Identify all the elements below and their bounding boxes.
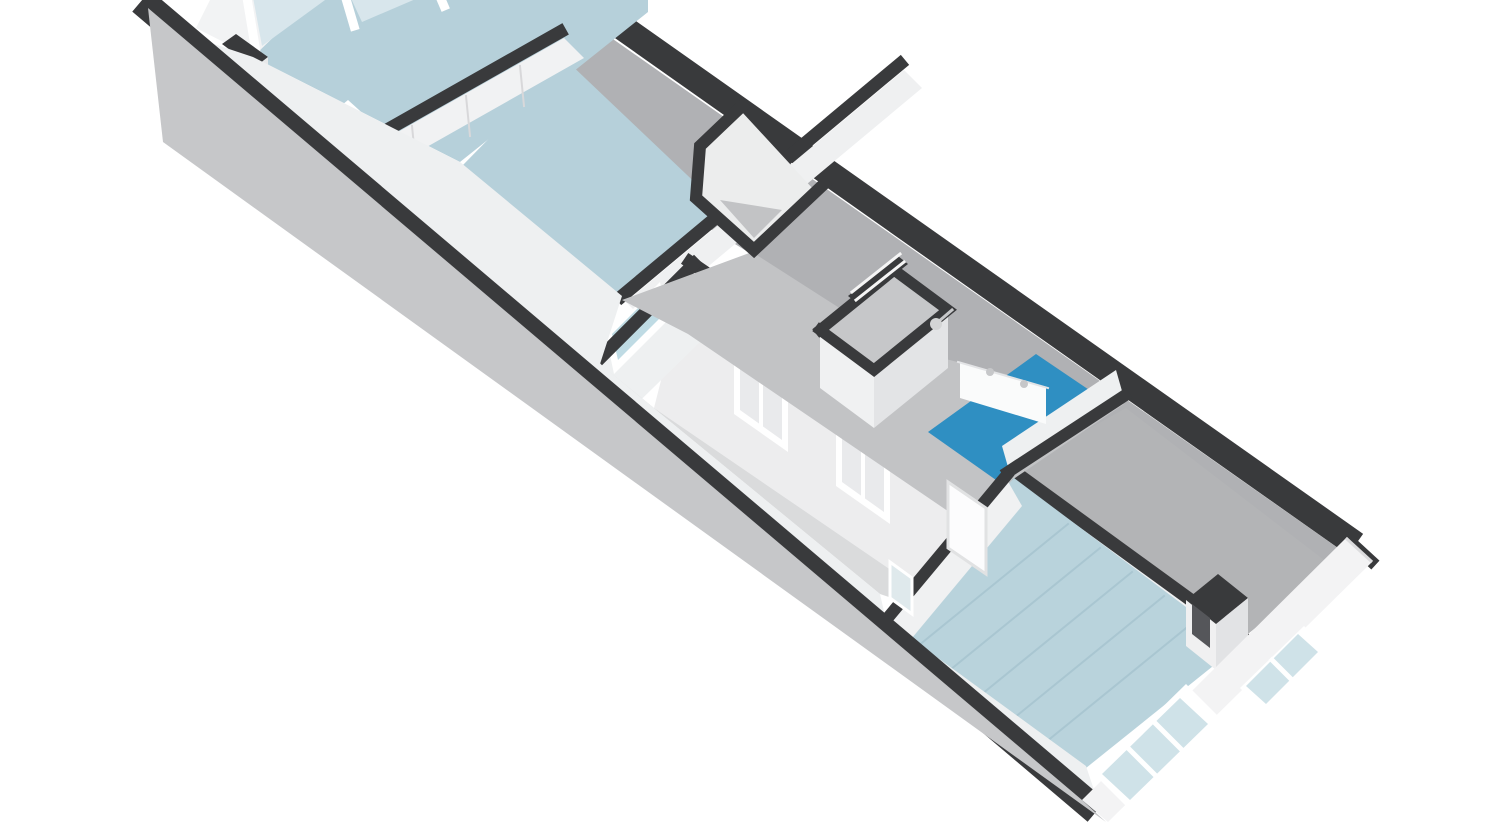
vanity-faucet-2: [1020, 380, 1028, 388]
vanity-faucet-1: [986, 368, 994, 376]
floorplan-viewer: [0, 0, 1500, 822]
bedroom1-window-mullion-3: [438, 0, 444, 6]
shower-head: [930, 318, 942, 330]
floorplan-3d-canvas: [0, 0, 1500, 822]
